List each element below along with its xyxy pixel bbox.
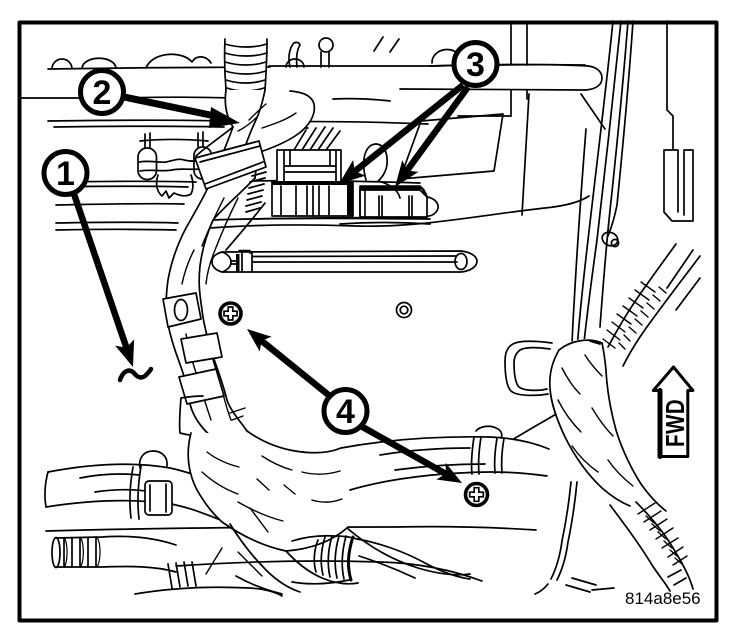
- svg-text:3: 3: [466, 46, 485, 84]
- svg-text:FWD: FWD: [661, 399, 690, 447]
- svg-text:814a8e56: 814a8e56: [625, 589, 701, 608]
- svg-text:1: 1: [56, 155, 75, 193]
- svg-text:4: 4: [336, 393, 355, 431]
- svg-text:2: 2: [93, 74, 112, 112]
